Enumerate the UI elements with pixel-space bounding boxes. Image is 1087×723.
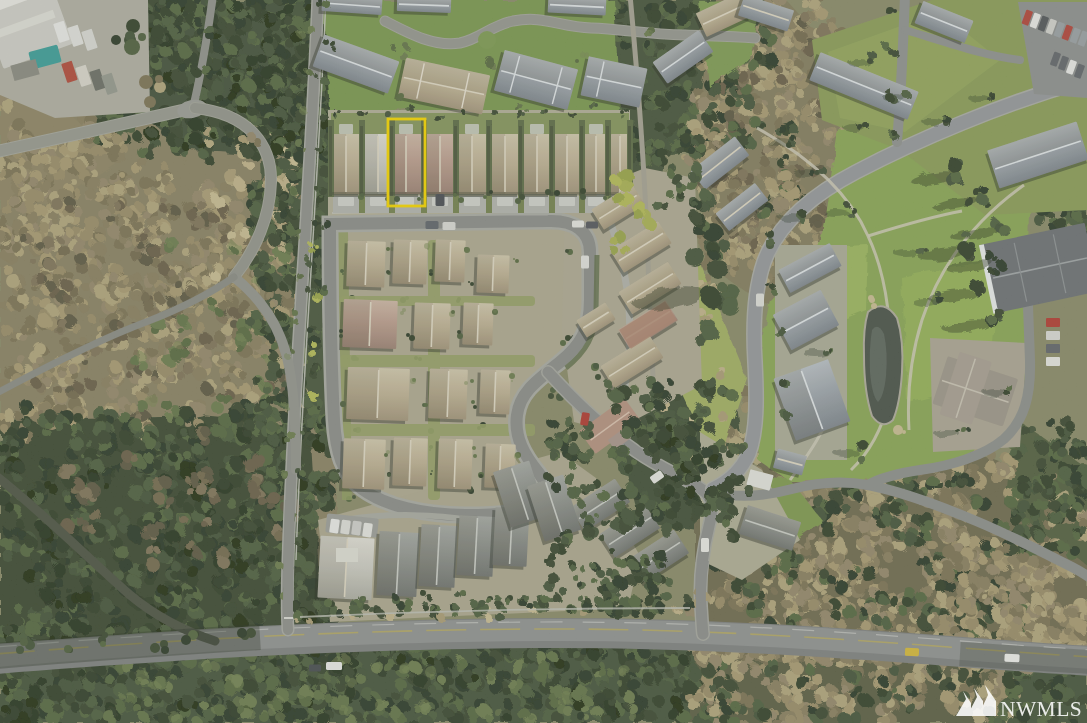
svg-text:NWMLS: NWMLS: [1000, 697, 1082, 721]
